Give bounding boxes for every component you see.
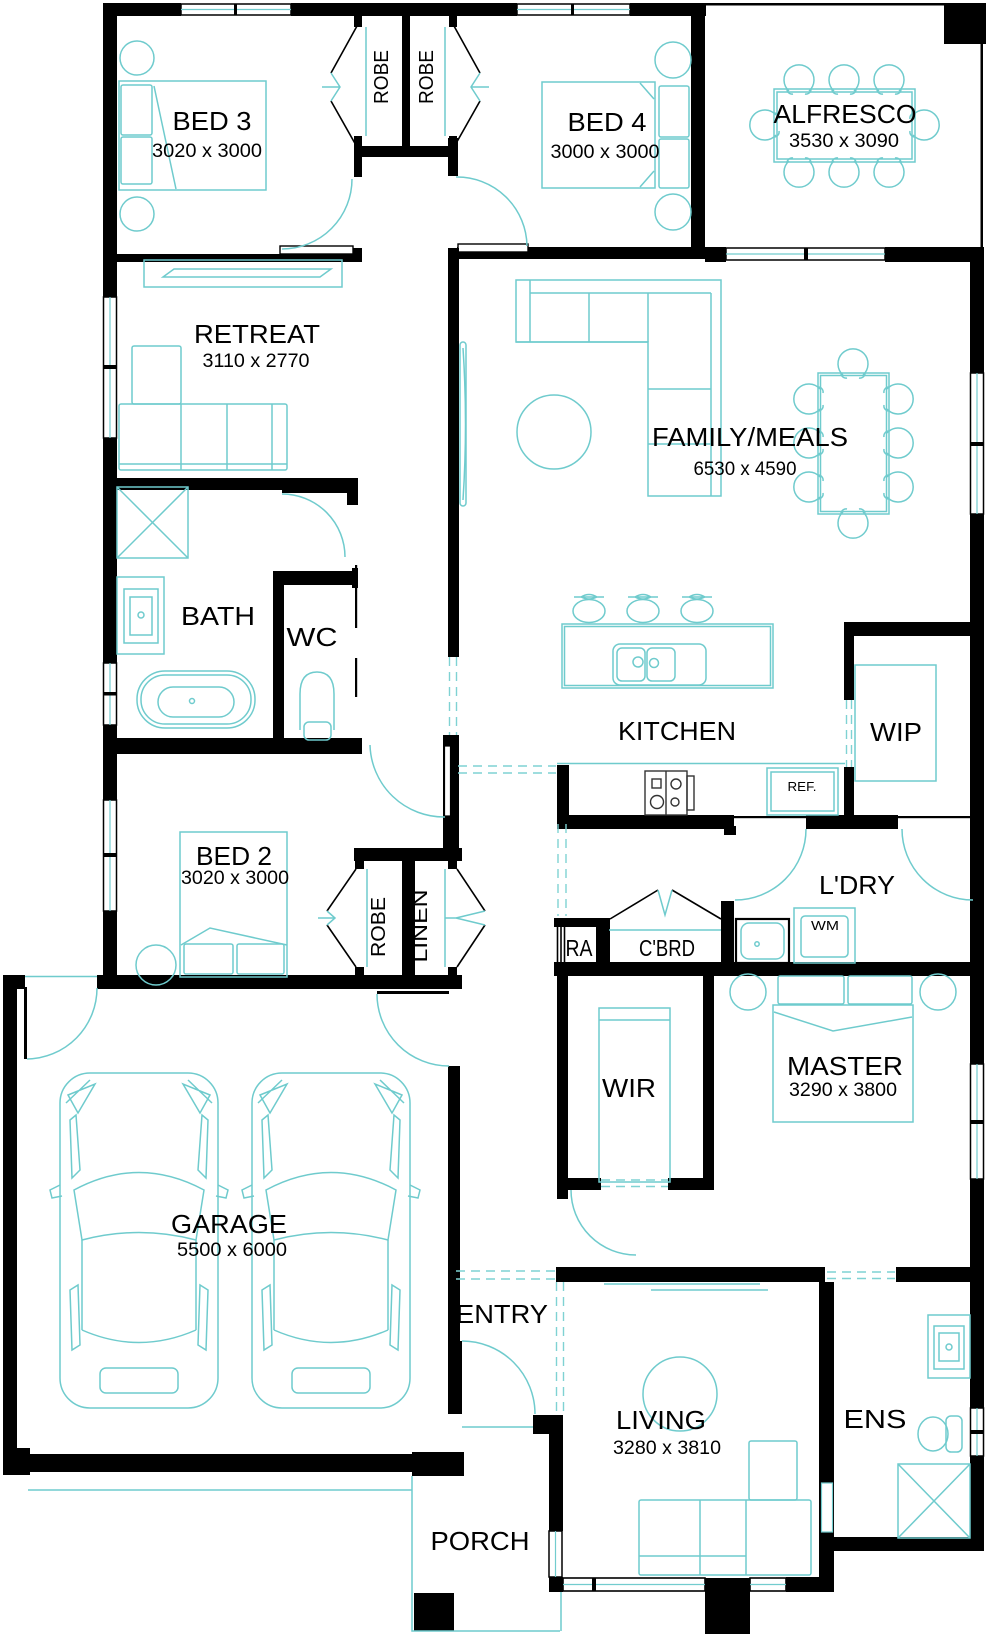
svg-text:WC: WC: [287, 622, 338, 652]
svg-text:LIVING: LIVING: [616, 1405, 706, 1435]
svg-text:3530 x 3090: 3530 x 3090: [789, 131, 899, 152]
svg-text:ENS: ENS: [844, 1404, 907, 1434]
svg-text:GARAGE: GARAGE: [171, 1209, 287, 1239]
svg-text:3000 x 3000: 3000 x 3000: [551, 142, 660, 163]
svg-text:PORCH: PORCH: [431, 1526, 530, 1556]
svg-text:BED 3: BED 3: [173, 106, 252, 136]
svg-text:3110 x 2770: 3110 x 2770: [203, 351, 310, 372]
svg-text:WM: WM: [811, 918, 839, 933]
svg-text:3020 x 3000: 3020 x 3000: [181, 868, 289, 889]
svg-text:KITCHEN: KITCHEN: [618, 716, 736, 746]
svg-text:ROBE: ROBE: [371, 50, 393, 104]
svg-text:BED 2: BED 2: [196, 841, 272, 871]
svg-text:MASTER: MASTER: [787, 1051, 903, 1081]
svg-text:3280 x 3810: 3280 x 3810: [613, 1438, 721, 1459]
svg-text:LINEN: LINEN: [410, 890, 432, 963]
svg-text:ENTRY: ENTRY: [456, 1299, 548, 1329]
svg-text:ALFRESCO: ALFRESCO: [774, 99, 917, 129]
svg-text:RETREAT: RETREAT: [194, 319, 320, 349]
svg-text:FAMILY/MEALS: FAMILY/MEALS: [652, 422, 848, 452]
svg-text:BATH: BATH: [181, 601, 255, 631]
svg-text:ROBE: ROBE: [368, 897, 390, 957]
svg-text:L'DRY: L'DRY: [819, 870, 895, 900]
svg-text:WIP: WIP: [870, 717, 922, 747]
svg-text:REF.: REF.: [788, 779, 817, 794]
svg-text:6530 x 4590: 6530 x 4590: [694, 459, 797, 480]
svg-text:5500 x 6000: 5500 x 6000: [177, 1240, 287, 1261]
svg-text:WIR: WIR: [602, 1073, 656, 1103]
svg-text:3020 x 3000: 3020 x 3000: [152, 141, 262, 162]
svg-text:ROBE: ROBE: [416, 50, 438, 104]
svg-text:BED 4: BED 4: [568, 107, 647, 137]
svg-text:3290 x 3800: 3290 x 3800: [789, 1080, 897, 1101]
svg-text:C'BRD: C'BRD: [639, 935, 695, 961]
svg-text:RA: RA: [566, 935, 594, 961]
